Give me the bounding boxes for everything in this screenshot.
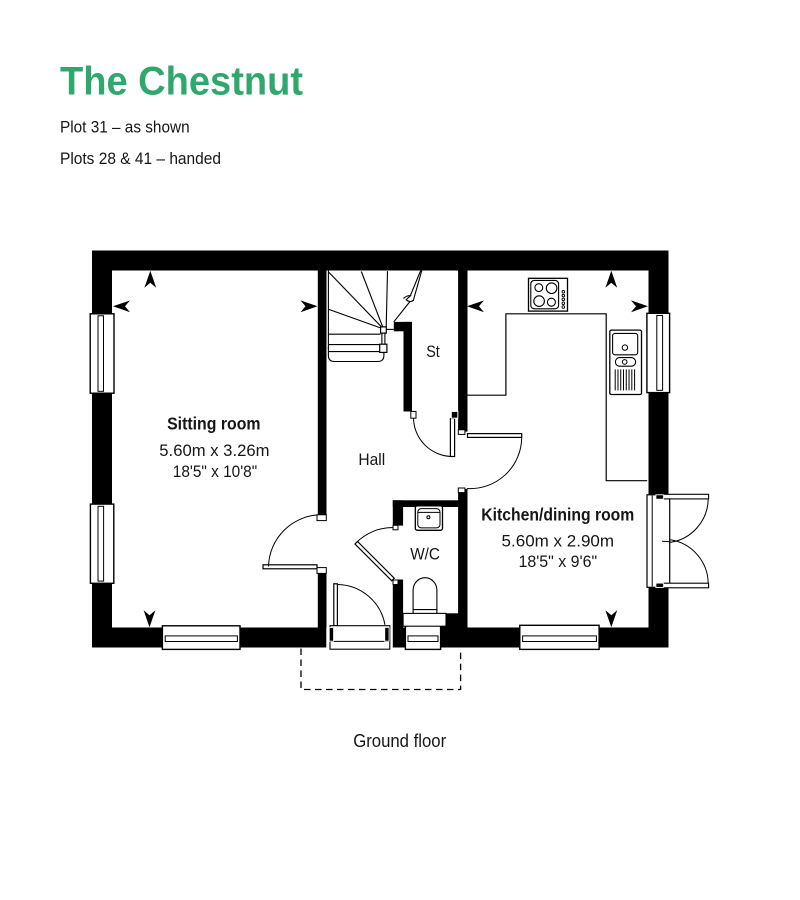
svg-text:Ground floor: Ground floor bbox=[353, 731, 446, 751]
svg-text:Plot 31 – as shown: Plot 31 – as shown bbox=[60, 118, 190, 136]
svg-text:Sitting room: Sitting room bbox=[167, 414, 260, 434]
svg-text:18'5" x 10'8": 18'5" x 10'8" bbox=[173, 462, 257, 481]
svg-text:St: St bbox=[426, 343, 440, 361]
svg-text:Kitchen/dining room: Kitchen/dining room bbox=[481, 504, 634, 524]
svg-text:W/C: W/C bbox=[410, 546, 440, 564]
svg-text:5.60m x 3.26m: 5.60m x 3.26m bbox=[159, 441, 269, 460]
svg-text:Plots 28 & 41 – handed: Plots 28 & 41 – handed bbox=[60, 150, 221, 168]
svg-text:5.60m x 2.90m: 5.60m x 2.90m bbox=[502, 531, 615, 550]
svg-text:18'5" x 9'6": 18'5" x 9'6" bbox=[518, 552, 597, 571]
svg-text:The Chestnut: The Chestnut bbox=[60, 59, 303, 103]
svg-text:Hall: Hall bbox=[358, 451, 385, 469]
